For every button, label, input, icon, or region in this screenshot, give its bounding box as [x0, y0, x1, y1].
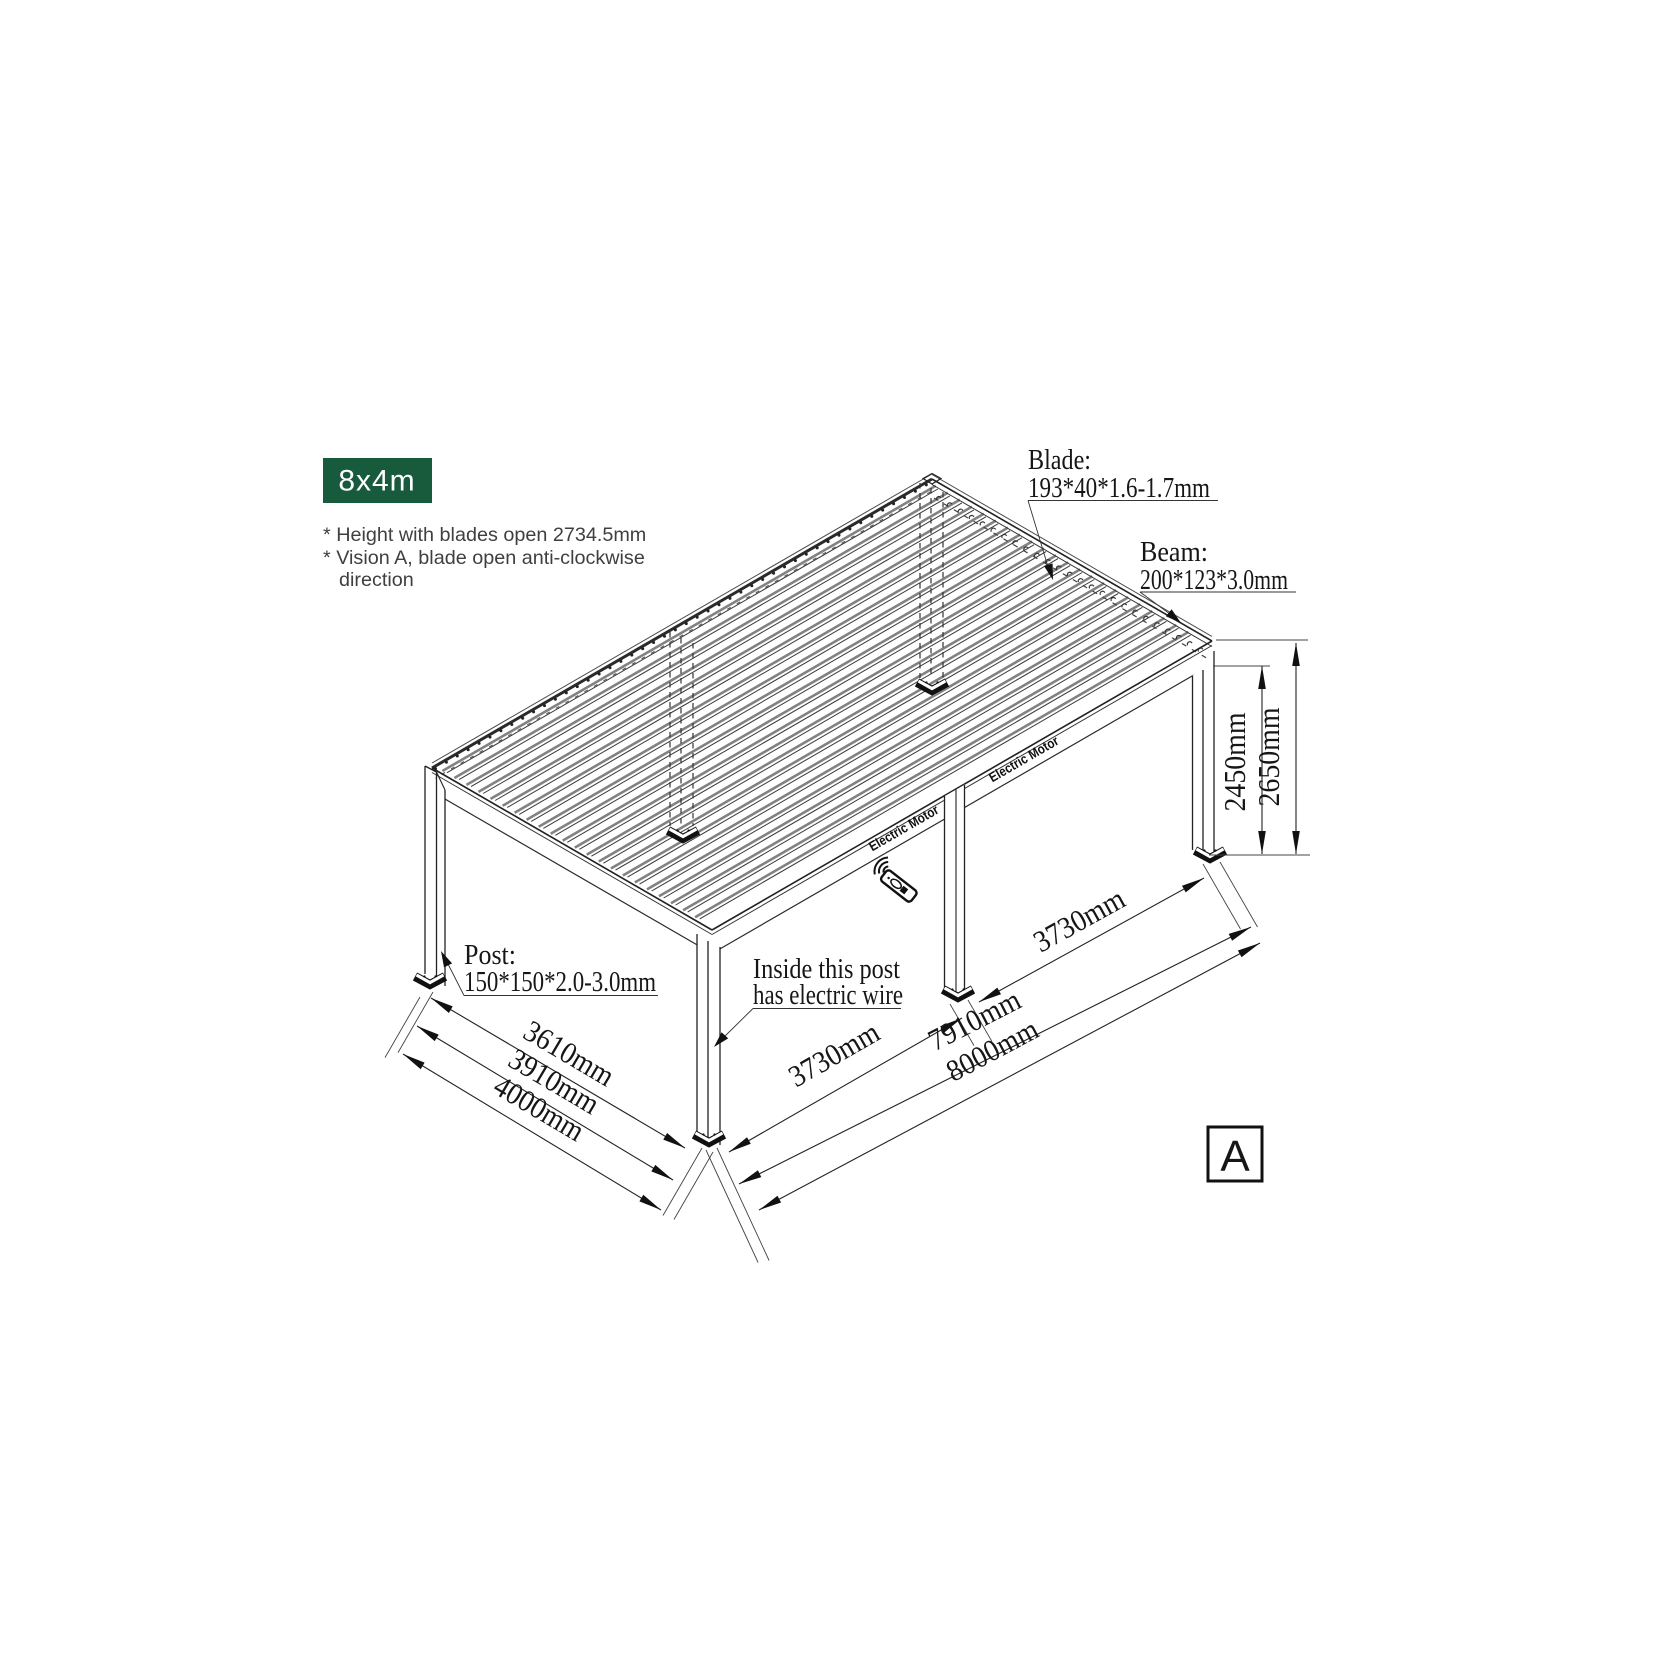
svg-text:A: A — [1220, 1132, 1250, 1181]
svg-text:2650mm: 2650mm — [1252, 707, 1286, 806]
svg-text:200*123*3.0mm: 200*123*3.0mm — [1140, 564, 1288, 596]
svg-text:150*150*2.0-3.0mm: 150*150*2.0-3.0mm — [464, 966, 656, 998]
svg-text:direction: direction — [339, 569, 414, 591]
svg-text:* Height with blades open 2734: * Height with blades open 2734.5mm — [323, 524, 646, 546]
svg-text:2450mm: 2450mm — [1218, 712, 1252, 811]
svg-text:has electric wire: has electric wire — [753, 979, 903, 1011]
svg-text:8x4m: 8x4m — [338, 465, 415, 498]
svg-text:193*40*1.6-1.7mm: 193*40*1.6-1.7mm — [1028, 472, 1210, 504]
svg-text:* Vision A, blade open anti-cl: * Vision A, blade open anti-clockwise — [323, 547, 645, 569]
